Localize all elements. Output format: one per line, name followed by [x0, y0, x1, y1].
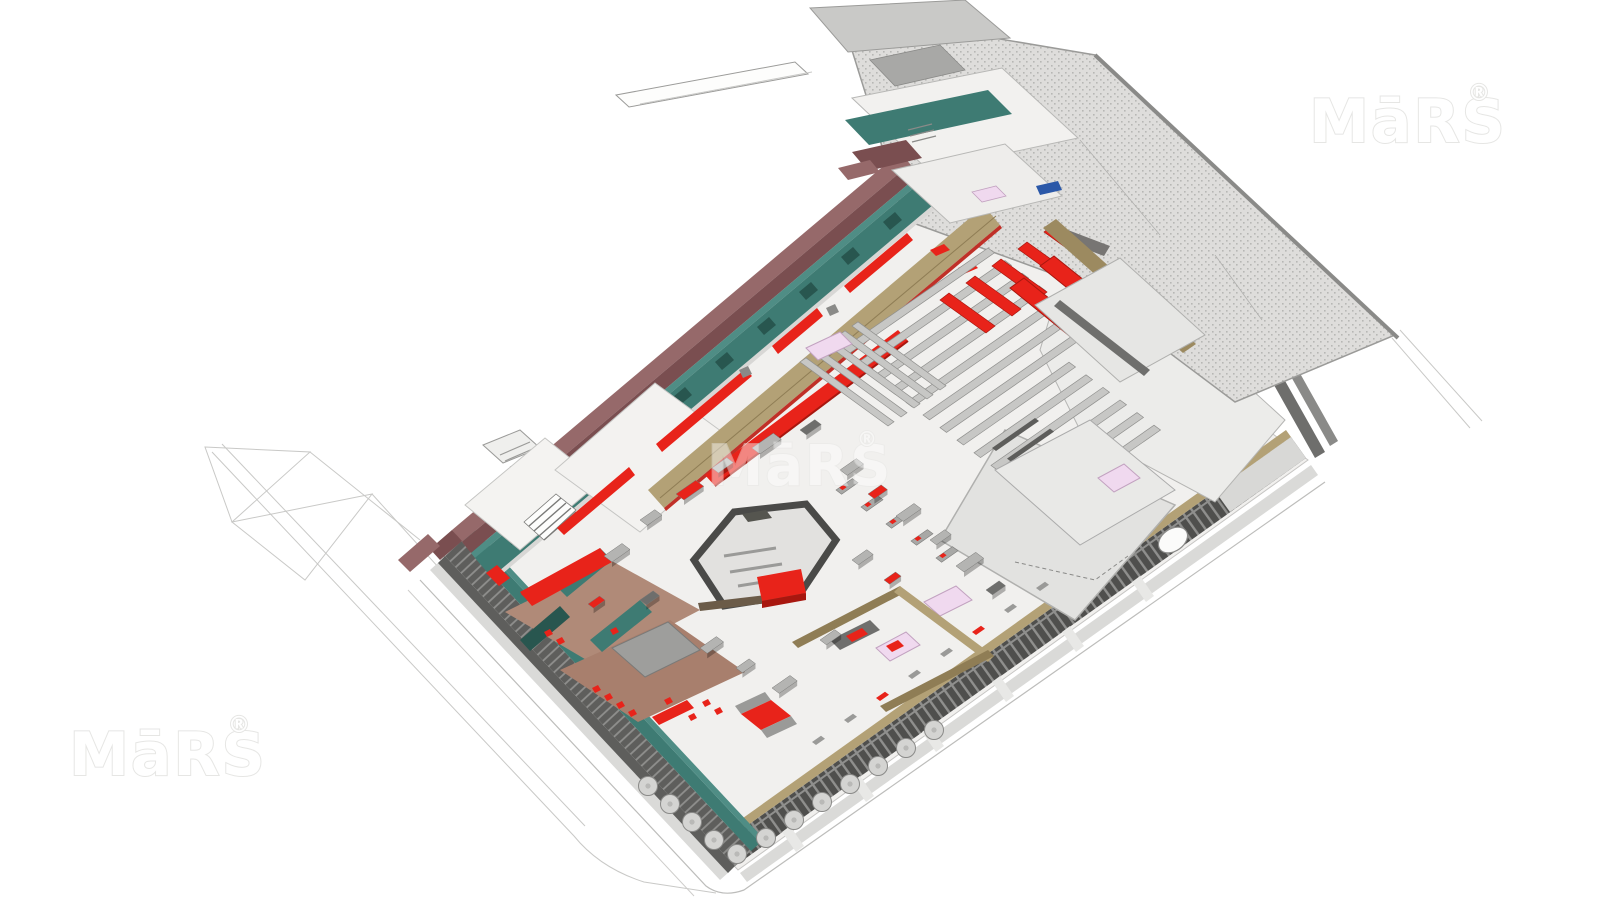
watermark-center: MāRS ® [708, 427, 893, 499]
bim-render-canvas: MāRS ® MāRS ® MāRS ® [0, 0, 1600, 900]
registered-mark: ® [857, 427, 879, 451]
watermark-bottom-left: MāRS ® [69, 713, 267, 790]
registered-mark: ® [228, 713, 252, 738]
registered-mark: ® [1468, 81, 1492, 106]
watermark-top-right: MāRS ® [1309, 81, 1507, 157]
axonometric-model: MāRS ® MāRS ® MāRS ® [0, 0, 1600, 900]
